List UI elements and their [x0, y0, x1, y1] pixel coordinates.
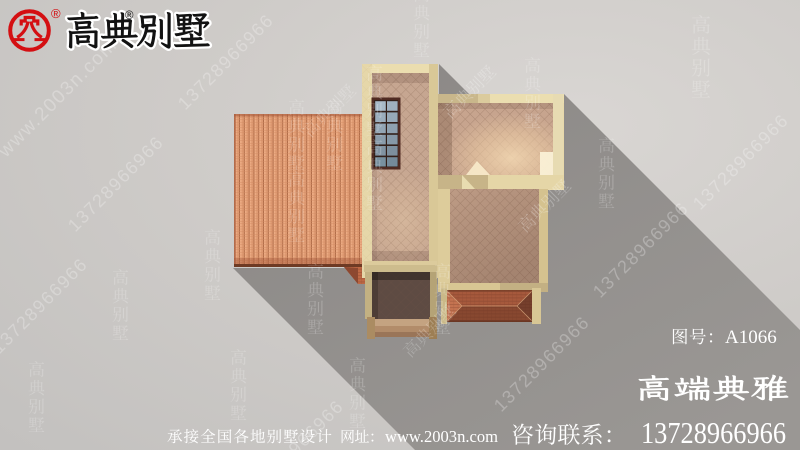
svg-text:®: ®	[125, 10, 134, 22]
svg-text:13728966966: 13728966966	[641, 415, 786, 450]
svg-text:®: ®	[51, 6, 61, 21]
svg-text:A1066: A1066	[725, 327, 777, 348]
svg-text:www.2003n.com: www.2003n.com	[385, 427, 498, 446]
